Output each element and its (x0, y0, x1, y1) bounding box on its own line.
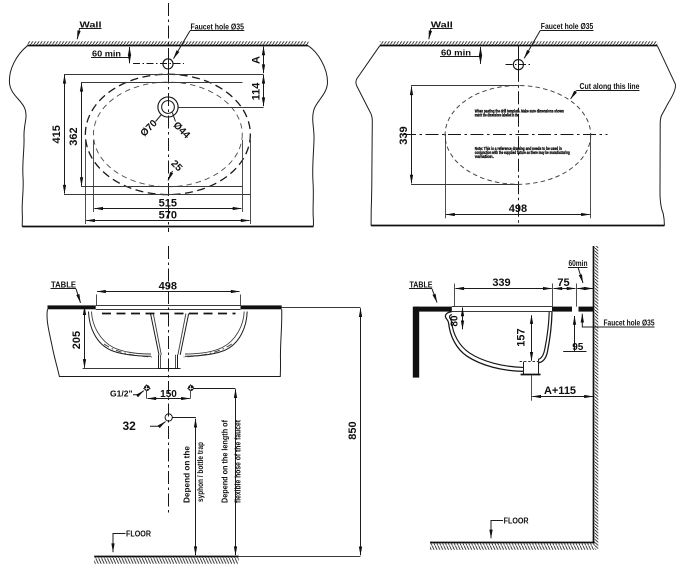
svg-text:114: 114 (250, 82, 262, 101)
svg-text:850: 850 (347, 421, 359, 439)
svg-text:Faucet hole Ø35: Faucet hole Ø35 (541, 21, 594, 31)
svg-text:FLOOR: FLOOR (126, 529, 152, 539)
svg-text:Ø70: Ø70 (139, 118, 160, 139)
svg-text:498: 498 (509, 203, 527, 215)
svg-text:95: 95 (572, 342, 584, 353)
svg-text:match the dimensions labelled: match the dimensions labelled in the (475, 113, 519, 118)
svg-text:syphon / bottle trap: syphon / bottle trap (195, 442, 205, 502)
svg-text:150: 150 (160, 389, 177, 400)
svg-text:32: 32 (123, 419, 137, 433)
svg-text:Wall: Wall (80, 19, 102, 29)
svg-text:Cut along this line: Cut along this line (580, 81, 640, 91)
svg-text:157: 157 (515, 328, 527, 346)
svg-text:Wall: Wall (431, 19, 453, 29)
svg-text:A+115: A+115 (544, 385, 576, 397)
svg-text:G1/2": G1/2" (110, 388, 133, 398)
svg-text:flexible hose of the faucet: flexible hose of the faucet (233, 420, 243, 503)
svg-text:570: 570 (159, 210, 177, 222)
svg-text:498: 498 (159, 280, 177, 292)
svg-text:TABLE: TABLE (51, 279, 76, 289)
svg-text:Faucet hole Ø35: Faucet hole Ø35 (191, 21, 245, 31)
svg-text:362: 362 (68, 127, 80, 145)
svg-text:variation.: variation. (475, 154, 494, 159)
svg-text:25: 25 (168, 158, 184, 174)
svg-text:Ø44: Ø44 (171, 120, 192, 141)
svg-text:TABLE: TABLE (410, 279, 433, 289)
svg-text:339: 339 (492, 277, 510, 289)
svg-text:80: 80 (450, 315, 461, 327)
svg-text:60 min: 60 min (92, 48, 121, 58)
svg-text:339: 339 (398, 126, 410, 144)
svg-text:A: A (250, 56, 262, 64)
svg-text:515: 515 (159, 198, 177, 210)
svg-text:Depend on the length of: Depend on the length of (220, 420, 230, 503)
svg-text:Faucet hole Ø35: Faucet hole Ø35 (604, 318, 655, 328)
svg-text:415: 415 (51, 125, 63, 143)
svg-text:60 min: 60 min (441, 47, 471, 57)
svg-text:Depend on the: Depend on the (182, 446, 192, 503)
svg-text:75: 75 (557, 277, 569, 289)
svg-text:205: 205 (71, 331, 83, 349)
svg-text:FLOOR: FLOOR (504, 516, 530, 526)
svg-text:60min: 60min (569, 258, 588, 268)
